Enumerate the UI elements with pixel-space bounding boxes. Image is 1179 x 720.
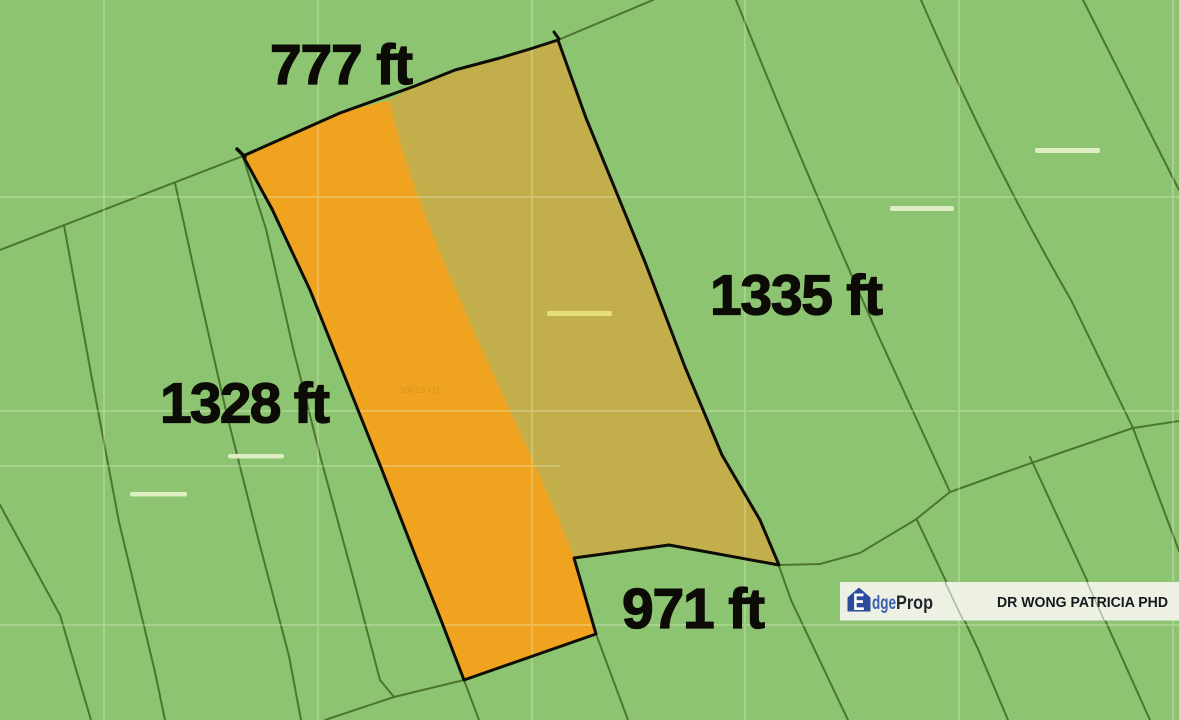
svg-text:777 ft: 777 ft [270, 33, 413, 97]
svg-text:Prop: Prop [896, 592, 933, 614]
svg-text:E: E [853, 589, 865, 616]
svg-text:971 ft: 971 ft [622, 577, 765, 641]
svg-text:1328 ft: 1328 ft [160, 372, 330, 436]
svg-text:DR WONG PATRICIA PHD: DR WONG PATRICIA PHD [997, 595, 1168, 611]
svg-text:50619 (1): 50619 (1) [399, 385, 440, 396]
svg-text:dge: dge [872, 592, 896, 614]
svg-text:1335 ft: 1335 ft [710, 264, 883, 328]
